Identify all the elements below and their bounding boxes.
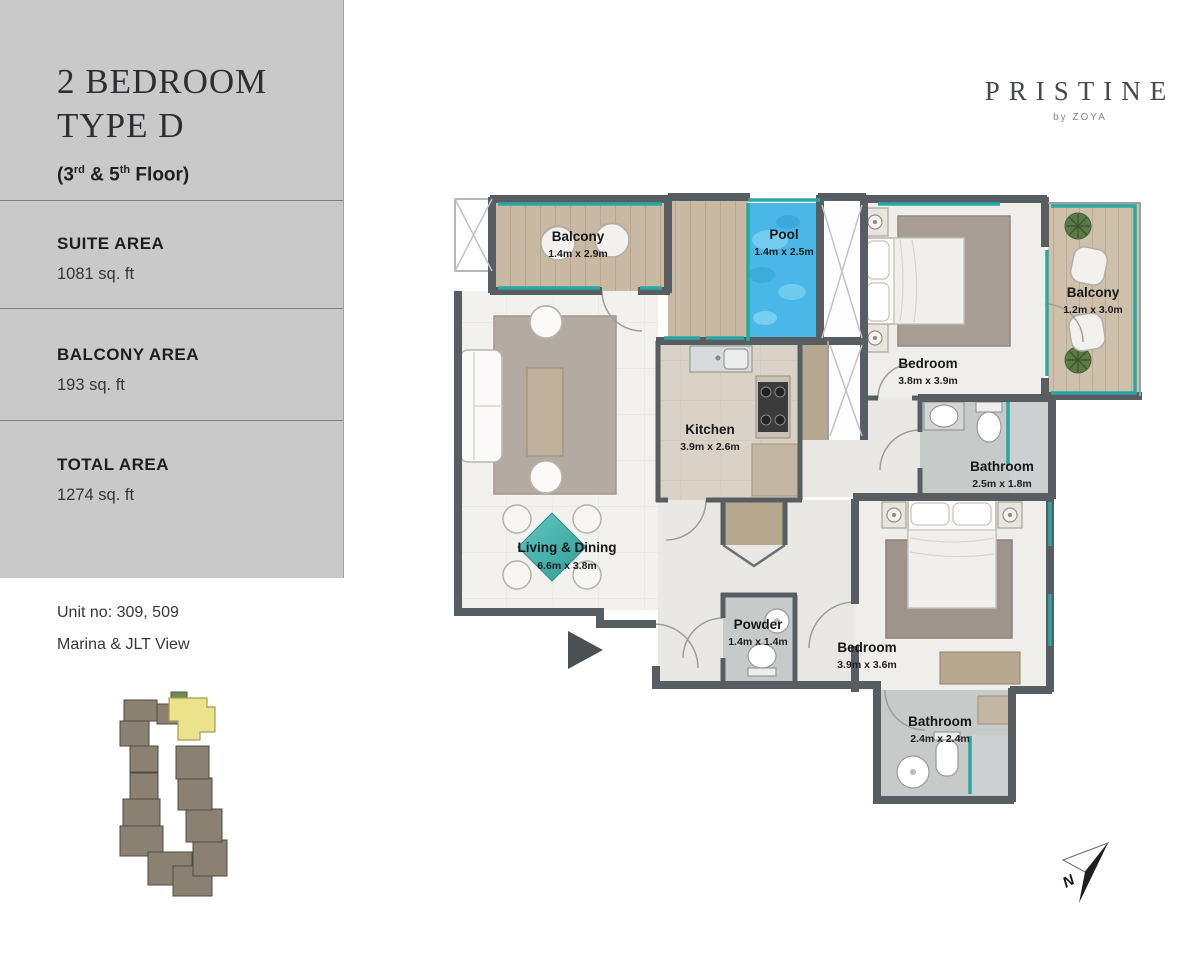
suite-area-section: SUITE AREA 1081 sq. ft xyxy=(0,200,343,308)
plan-title-line2: TYPE D xyxy=(57,104,323,148)
north-arrow: N xyxy=(1060,843,1108,903)
sidebar: 2 BEDROOM TYPE D (3rd & 5th Floor) SUITE… xyxy=(0,0,344,578)
bedroom-1-bed xyxy=(864,238,964,324)
floor-note: (3rd & 5th Floor) xyxy=(57,164,323,186)
coffee-table xyxy=(527,368,563,456)
room-dims-living-dining: 6.6m x 3.8m xyxy=(537,560,597,572)
room-label-bedroom-1: Bedroom xyxy=(898,356,957,371)
bedroom-2-bed xyxy=(908,500,996,608)
brand-byline: by ZOYA xyxy=(980,112,1180,123)
kitchen-sink xyxy=(690,346,752,372)
room-label-balcony-1: Balcony xyxy=(552,229,605,244)
unit-info: Unit no: 309, 509 Marina & JLT View xyxy=(57,604,190,668)
balcony-area-label: BALCONY AREA xyxy=(57,345,323,365)
floor-note-pre: (3 xyxy=(57,164,74,185)
room-dims-bathroom-2: 2.4m x 2.4m xyxy=(910,733,970,745)
brand-name: PRISTINE xyxy=(980,76,1180,107)
hall-closet xyxy=(723,500,785,545)
floor-note-post: Floor) xyxy=(130,164,189,185)
total-area-section: TOTAL AREA 1274 sq. ft xyxy=(0,420,343,518)
floor-plan: N Balcony 1.4m x 2.9m Pool 1.4m x 2.5m B… xyxy=(445,180,1155,910)
key-plan-highlighted-unit xyxy=(169,698,215,740)
room-label-balcony-2: Balcony xyxy=(1067,285,1120,300)
room-dims-bedroom-1: 3.8m x 3.9m xyxy=(898,375,958,387)
balcony-area-value: 193 sq. ft xyxy=(57,376,323,395)
room-dims-powder: 1.4m x 1.4m xyxy=(728,636,788,648)
north-label: N xyxy=(1060,871,1079,892)
floor-note-mid: & 5 xyxy=(85,164,120,185)
kitchen-counter xyxy=(752,444,798,496)
room-dims-balcony-1: 1.4m x 2.9m xyxy=(548,248,608,260)
room-dims-pool: 1.4m x 2.5m xyxy=(754,246,814,258)
plan-title-line1: 2 BEDROOM xyxy=(57,60,323,104)
floor-note-sup1: rd xyxy=(74,164,85,176)
unit-view: Marina & JLT View xyxy=(57,636,190,654)
suite-area-label: SUITE AREA xyxy=(57,234,323,254)
unit-number: Unit no: 309, 509 xyxy=(57,604,190,622)
stove xyxy=(756,376,790,438)
brochure-page: 2 BEDROOM TYPE D (3rd & 5th Floor) SUITE… xyxy=(0,0,1200,960)
room-dims-bathroom-1: 2.5m x 1.8m xyxy=(972,478,1032,490)
room-label-bedroom-2: Bedroom xyxy=(837,640,896,655)
bedroom-2-wardrobe xyxy=(940,652,1020,684)
room-dims-kitchen: 3.9m x 2.6m xyxy=(680,441,740,453)
utility-closet xyxy=(800,341,828,440)
key-plan xyxy=(116,690,248,902)
brand-logo: PRISTINE by ZOYA xyxy=(980,76,1180,123)
suite-area-value: 1081 sq. ft xyxy=(57,265,323,284)
balcony-area-section: BALCONY AREA 193 sq. ft xyxy=(0,308,343,420)
room-label-living-dining: Living & Dining xyxy=(518,540,617,555)
entrance-arrow xyxy=(568,631,603,669)
total-area-value: 1274 sq. ft xyxy=(57,486,323,505)
room-label-kitchen: Kitchen xyxy=(685,422,735,437)
total-area-label: TOTAL AREA xyxy=(57,455,323,475)
balcony-1-floor xyxy=(492,199,668,291)
room-label-bathroom-2: Bathroom xyxy=(908,714,972,729)
corridor-wood-floor xyxy=(668,197,748,343)
sofa xyxy=(460,350,502,462)
room-label-pool: Pool xyxy=(769,227,798,242)
hall-connector-floor xyxy=(800,440,864,497)
floor-note-sup2: th xyxy=(120,164,130,176)
plan-title-block: 2 BEDROOM TYPE D (3rd & 5th Floor) xyxy=(0,0,343,200)
room-dims-balcony-2: 1.2m x 3.0m xyxy=(1063,304,1123,316)
room-dims-bedroom-2: 3.9m x 3.6m xyxy=(837,659,897,671)
room-label-bathroom-1: Bathroom xyxy=(970,459,1034,474)
upper-hall-floor xyxy=(864,398,920,497)
room-label-powder: Powder xyxy=(734,617,784,632)
